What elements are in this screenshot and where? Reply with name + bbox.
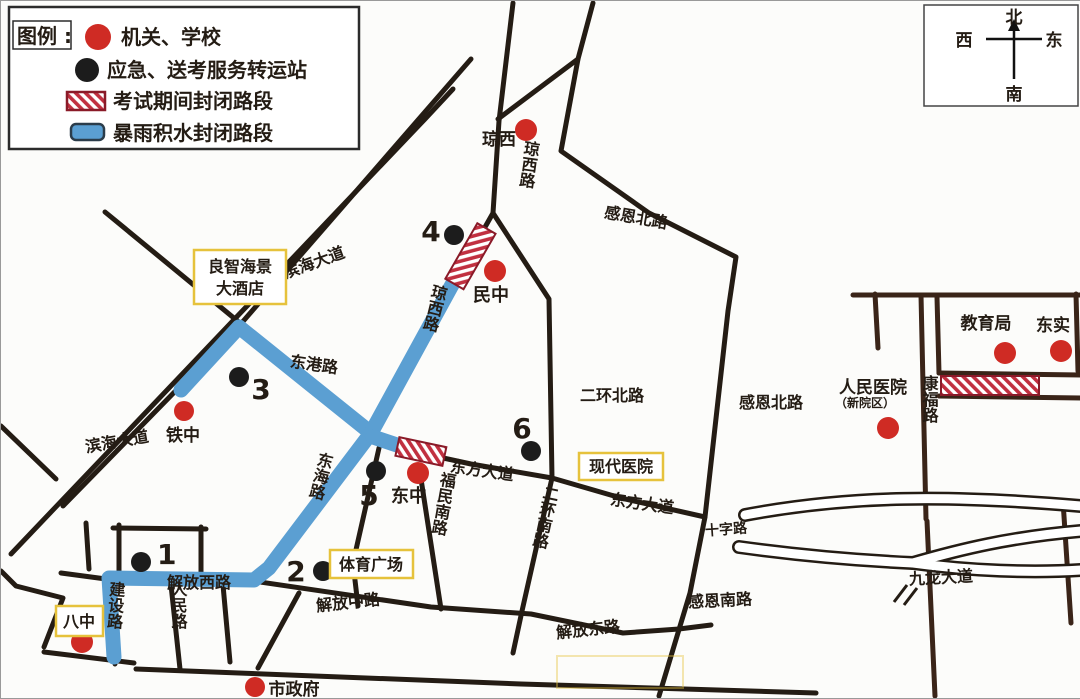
road-closed-top-line — [939, 373, 1080, 375]
flooded-section-stub — [373, 437, 400, 446]
place-label-shizhengfu: 市政府 — [269, 679, 320, 698]
compass-south: 南 — [1006, 84, 1023, 105]
station-dot-1 — [131, 552, 151, 572]
road-label-erhuan-north: 二环北路 — [580, 386, 645, 405]
closed-section-kangfu-east — [941, 376, 1039, 395]
map-canvas: 滨海大道 滨海大道 东港路 琼西路 琼西路 东海路 感恩北路 感恩北路 二环北路… — [1, 1, 1080, 698]
red-dot-shizhengfu — [245, 677, 265, 697]
compass-east: 东 — [1046, 30, 1063, 51]
station-number-3: 3 — [251, 373, 270, 406]
compass: 北 西 东 南 — [924, 5, 1078, 106]
station-number-4: 4 — [421, 215, 440, 248]
road-block2-vert — [223, 585, 230, 662]
road-label-shizi: 十字路 — [704, 519, 748, 539]
red-dot-jiaoyuju — [994, 342, 1016, 364]
place-label-dongshi: 东实 — [1036, 315, 1070, 336]
landmark-label-hotel-line1: 良智海景 — [208, 257, 272, 276]
legend-item-label-stations: 应急、送考服务转运站 — [107, 58, 307, 82]
place-label-renmin-hospital-sub: （新院区） — [835, 395, 895, 410]
red-dot-dongshi — [1050, 340, 1072, 362]
red-dot-minzhong — [484, 260, 506, 282]
legend-title: 图例 : — [17, 24, 72, 48]
road-left-edge — [1, 426, 56, 479]
road-label-ganen-north-1: 感恩北路 — [603, 203, 670, 233]
legend-hatched-road-icon — [67, 92, 105, 110]
red-dot-tiezhong — [174, 401, 194, 421]
station-number-2: 2 — [286, 555, 305, 588]
legend-flooded-road-icon — [71, 124, 104, 140]
place-label-tiezhong: 铁中 — [166, 425, 200, 446]
station-number-6: 6 — [512, 412, 531, 445]
legend: 图例 : 机关、学校 应急、送考服务转运站 考试期间封闭路段 暴雨积水封闭路段 — [9, 7, 359, 149]
landmark-label-hotel-line2: 大酒店 — [216, 279, 264, 298]
station-dot-5 — [366, 461, 386, 481]
legend-item-label-flooded: 暴雨积水封闭路段 — [113, 121, 273, 145]
place-label-jiaoyuju: 教育局 — [960, 313, 1012, 334]
station-number-5: 5 — [359, 479, 378, 512]
road-bazhong-west — [1, 571, 63, 647]
legend-black-dot-icon — [75, 58, 99, 82]
road-label-renmin: 人民路 — [169, 581, 188, 630]
road-label-jiulong: 九龙大道 — [908, 566, 974, 588]
road-block1-top — [113, 528, 206, 529]
road-kangfu-south — [927, 521, 935, 696]
road-label-ganen-south: 感恩南路 — [688, 589, 754, 611]
road-topright-stub — [875, 294, 878, 348]
legend-item-label-agencies: 机关、学校 — [121, 25, 222, 49]
road-label-ganen-north-2: 感恩北路 — [739, 393, 804, 412]
road-right-vertical — [1063, 501, 1071, 623]
place-label-qiongxi: 琼西 — [482, 129, 516, 150]
compass-box — [924, 5, 1078, 106]
road-block1-edge — [86, 523, 89, 569]
place-label-renmin-hospital: 人民医院 — [839, 377, 907, 398]
road-label-jianshe: 建设路 — [104, 580, 126, 630]
road-label-erhuan-south: 二环南路 — [528, 483, 560, 551]
road-label-dongfang-2: 东方大道 — [609, 490, 675, 518]
red-dot-renmin-hospital — [877, 417, 899, 439]
legend-red-dot-icon — [85, 24, 111, 50]
compass-north: 北 — [1006, 8, 1023, 28]
road-label-binhai-1: 滨海大道 — [281, 243, 348, 283]
station-dot-4 — [444, 225, 464, 245]
road-kangfu-north-east-line — [937, 297, 939, 373]
landmark-label-bazhong: 八中 — [62, 612, 95, 631]
road-label-dongfang-1: 东方大道 — [449, 457, 515, 485]
road-topright-edge — [1076, 294, 1078, 371]
closed-section-dongfang-avenue — [395, 437, 446, 466]
road-bottom — [136, 669, 816, 693]
road-label-qiongxi-1: 琼西路 — [515, 138, 541, 190]
station-number-1: 1 — [157, 538, 176, 571]
compass-west: 西 — [956, 31, 973, 51]
place-label-dongzhong: 东中 — [391, 485, 427, 507]
place-label-minzhong: 民中 — [473, 284, 509, 306]
red-dot-qiongxi — [515, 119, 537, 141]
road-label-fumin-south: 福民南路 — [427, 469, 458, 537]
landmark-label-sports-plaza: 体育广场 — [339, 555, 403, 574]
landmark-label-modern-hospital: 现代医院 — [589, 457, 653, 476]
exam-road-closure-map: 滨海大道 滨海大道 东港路 琼西路 琼西路 东海路 感恩北路 感恩北路 二环北路… — [0, 0, 1080, 699]
road-label-kangfu: 康福路 — [920, 374, 940, 424]
legend-item-label-closed: 考试期间封闭路段 — [113, 89, 273, 113]
road-closed-bottom-line — [939, 396, 1080, 398]
station-dot-3 — [229, 367, 249, 387]
road-jiulong-fork — [739, 499, 1080, 605]
red-dot-dongzhong — [407, 462, 429, 484]
road-binhai-avenue-lower — [11, 89, 453, 554]
road-diag-mid — [258, 593, 299, 668]
